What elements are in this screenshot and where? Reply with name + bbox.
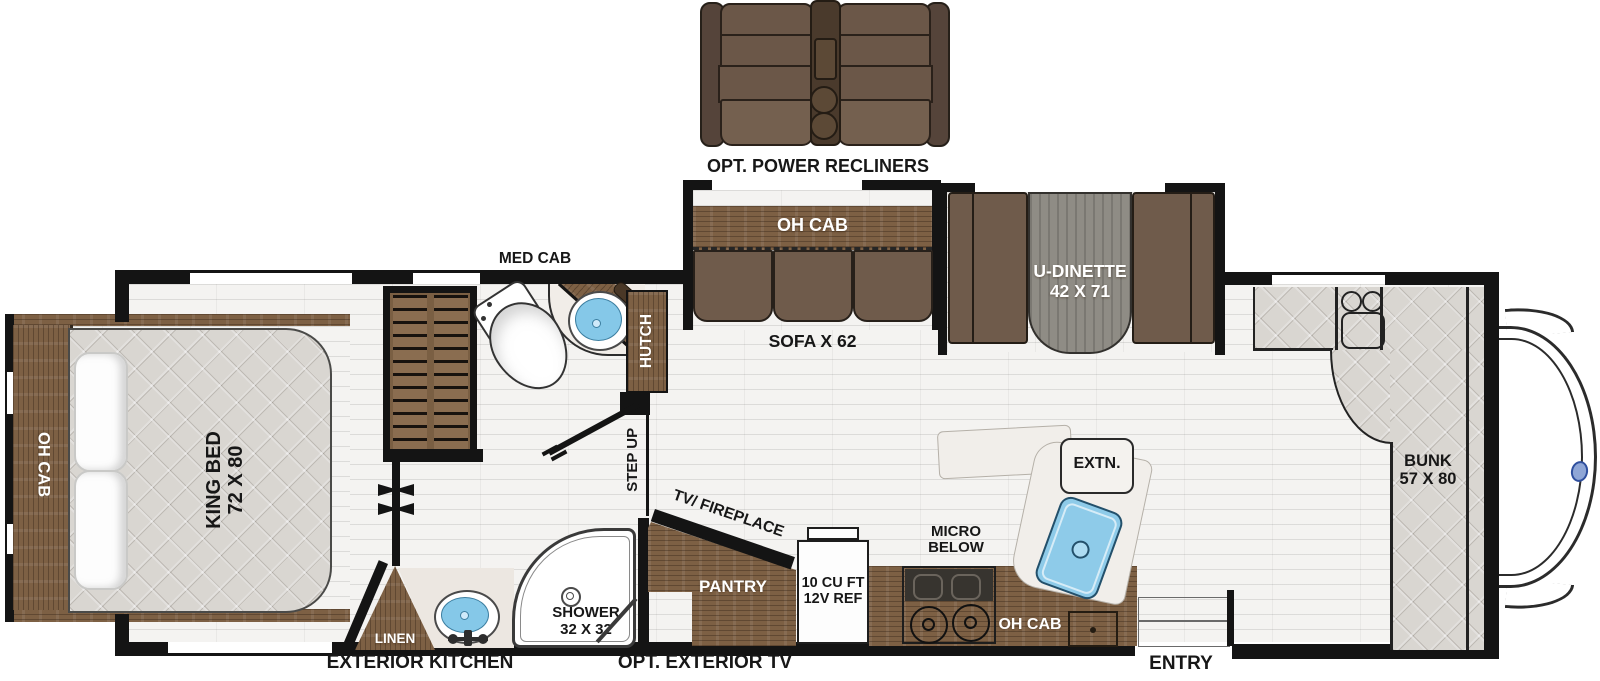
bunk-band-edge <box>1253 348 1333 351</box>
pillow <box>74 470 128 590</box>
wall-segment <box>1225 272 1272 285</box>
dinette-label: U-DINETTE42 X 71 <box>1018 262 1142 301</box>
wall-segment <box>638 518 649 648</box>
sofa-oh-cab-label: OH CAB <box>745 216 880 235</box>
wall-segment <box>115 642 168 656</box>
bed-oh-cab-label: OH CAB <box>34 423 51 507</box>
rv-floorplan: OPT. POWER RECLINERS OH CAB KING BED72 X… <box>0 0 1600 681</box>
window <box>1272 272 1385 275</box>
recliner-right-seat <box>835 65 933 103</box>
recliner-right-footrest <box>837 99 931 146</box>
pantry-label: PANTRY <box>693 578 773 596</box>
recliner-left-seat <box>718 65 816 103</box>
hanging-clothes-icon <box>393 295 427 453</box>
recliner-left-footrest <box>720 99 814 146</box>
recliner-right-back <box>837 3 931 38</box>
med-cab-label: MED CAB <box>480 251 590 267</box>
king-bed-label: KING BED72 X 80 <box>203 400 247 560</box>
vanity-faucet-icon <box>448 630 488 648</box>
fridge-label: 10 CU FT12V REF <box>797 576 869 608</box>
micro-below-label: MICROBELOW <box>914 524 998 556</box>
hanging-clothes-icon <box>434 295 468 453</box>
bunk-vent-icon <box>1341 291 1362 312</box>
entry-step-line <box>1138 620 1230 622</box>
linen-label: LINEN <box>363 632 427 646</box>
cup-holder-icon <box>810 86 838 114</box>
kitchen-oh-cab-label: OH CAB <box>993 617 1067 634</box>
wall-segment <box>383 449 483 462</box>
window <box>413 270 480 273</box>
step-up-line <box>646 410 649 516</box>
side-mirror-icon <box>1505 303 1574 338</box>
cooktop <box>902 566 996 644</box>
wall-segment <box>115 270 129 322</box>
sofa-cushion <box>773 250 853 322</box>
slide-wall <box>862 180 940 190</box>
hutch-label: HUTCH <box>639 291 655 391</box>
side-mirror-icon <box>1505 579 1574 614</box>
wardrobe-closet <box>383 286 477 458</box>
bunk-vent-icon <box>1362 291 1383 312</box>
slide-wall <box>938 183 947 355</box>
bunk-divider <box>1335 287 1338 350</box>
recliner-left-mid <box>720 34 814 69</box>
pillow <box>74 352 128 472</box>
wall-segment <box>1227 590 1234 646</box>
wall-segment <box>1385 272 1498 285</box>
sofa-label: SOFA X 62 <box>745 332 880 350</box>
slide-wall <box>938 183 975 192</box>
sofa-cushion <box>853 250 933 322</box>
exterior-kitchen-hatch <box>168 653 332 656</box>
wall-segment <box>1484 272 1499 659</box>
slide-wall <box>1215 183 1225 355</box>
recliner-console-tray <box>814 38 837 80</box>
sofa-cushion <box>693 250 773 322</box>
step-up-label: STEP UP <box>625 410 641 510</box>
bunk-label: BUNK57 X 80 <box>1386 452 1470 489</box>
entry-step-well <box>1138 597 1230 647</box>
wall-segment <box>352 270 413 284</box>
cup-holder-icon <box>810 112 838 140</box>
dinette-bench <box>948 192 1028 344</box>
recliner-left-back <box>720 3 814 38</box>
dinette-bench <box>1132 192 1215 344</box>
refrigerator-top <box>807 527 859 540</box>
slide-wall <box>683 180 693 330</box>
toilet <box>475 286 579 400</box>
bunk-mattress <box>1390 350 1484 650</box>
bunk-skylight-icon <box>1341 312 1385 349</box>
recliner-right-mid <box>837 34 931 69</box>
recliners-label: OPT. POWER RECLINERS <box>698 157 938 176</box>
entry-label: ENTRY <box>1135 654 1227 674</box>
extn-label: EXTN. <box>1060 456 1134 473</box>
window <box>188 270 354 273</box>
slide-wall <box>683 180 712 190</box>
opt-exterior-tv-label: OPT. EXTERIOR TV <box>595 653 815 673</box>
pocket-door-wall <box>392 462 400 566</box>
slide-wall <box>1165 183 1225 192</box>
exterior-kitchen-label: EXTERIOR KITCHEN <box>310 653 530 673</box>
kitchen-drawer <box>1068 611 1118 647</box>
